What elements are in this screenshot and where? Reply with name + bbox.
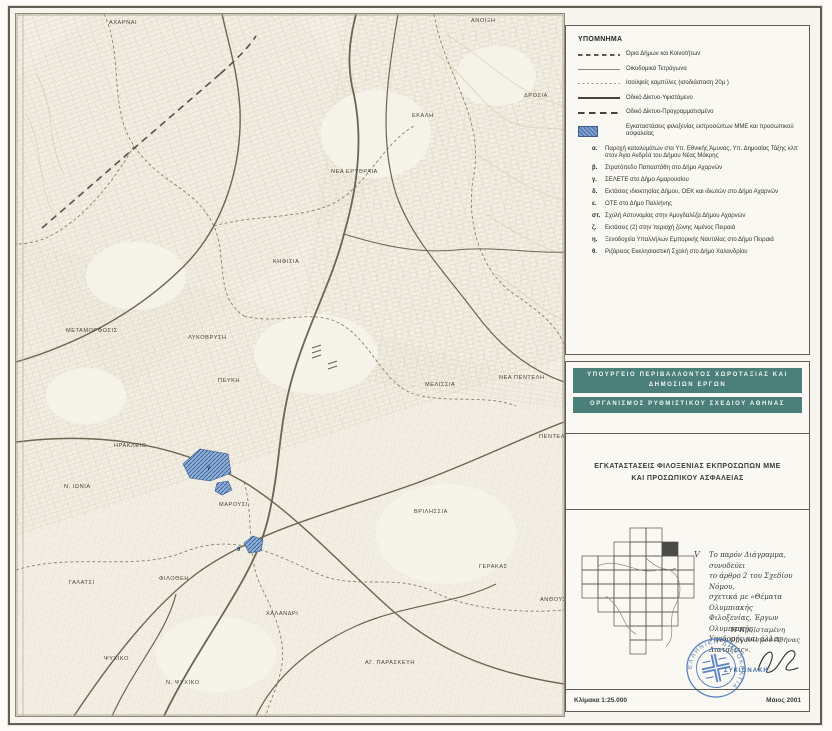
legend-item-label: Ισοϋψείς καμπύλες (ισοδιάσταση 20μ )	[626, 80, 729, 88]
legend-symbol-road-existing	[578, 97, 626, 99]
place-label: ΝΕΑ ΕΡΥΘΡΑΙΑ	[331, 169, 378, 175]
legend-symbol-road-planned	[578, 112, 626, 114]
facility-item-index: α.	[592, 146, 605, 161]
scanned-map-sheet: { "legend": { "heading": "ΥΠΟΜΝΗΜΑ", "li…	[0, 0, 832, 731]
ministry-banner: ΥΠΟΥΡΓΕΙΟ ΠΕΡΙΒΑΛΛΟΝΤΟΣ ΧΩΡΟΤΑΞΙΑΣ ΚΑΙ Δ…	[573, 368, 802, 393]
facility-list-item: ζ.Εκτάσεις (2) στην περιοχή ζώνης λιμένο…	[592, 225, 801, 233]
contour-symbol	[578, 83, 620, 84]
index-grid	[582, 528, 694, 654]
legend-item: Όρια Δήμων και Κοινοτήτων	[578, 51, 801, 59]
note-line: το άρθρο 2 του Σχεδίου Νόμου,	[709, 571, 806, 592]
legend-box: ΥΠΟΜΝΗΜΑ Όρια Δήμων και ΚοινοτήτωνΟικοδο…	[565, 25, 810, 355]
place-label: Ν. ΨΥΧΙΚΟ	[166, 680, 200, 686]
facility-marker-letter: θ	[237, 547, 240, 553]
place-label: ΑΧΑΡΝΑΙ	[109, 20, 137, 26]
place-label: ΠΕΝΤΕΛΗ	[539, 434, 564, 440]
stamp-cross-emblem	[699, 651, 732, 684]
place-label: ΑΓ. ΠΑΡΑΣΚΕΥΗ	[365, 660, 415, 666]
map-title-line2: ΚΑΙ ΠΡΟΣΩΠΙΚΟΥ ΑΣΦΑΛΕΙΑΣ	[631, 473, 743, 484]
facility-list-item: β.Στρατόπεδο Παπαστάθη στο Δήμο Αχαρνών	[592, 165, 801, 173]
legend-item-label: Όρια Δήμων και Κοινοτήτων	[626, 51, 700, 59]
place-label: ΛΥΚΟΒΡΥΣΗ	[188, 335, 227, 341]
map-area: γθ ΑΧΑΡΝΑΙΑΝΟΙΞΗΔΡΟΣΙΑΕΚΑΛΗΝΕΑ ΕΡΥΘΡΑΙΑΚ…	[15, 13, 565, 717]
place-label: ΠΕΥΚΗ	[218, 378, 240, 384]
place-label: ΗΡΑΚΛΕΙΟ	[114, 443, 147, 449]
facility-list-item: η.Ξενοδοχεία Υπαλλήλων Εμπορικής Ναυτιλί…	[592, 237, 801, 245]
legend-symbol-block	[578, 69, 626, 70]
agency-banner: ΟΡΓΑΝΙΣΜΟΣ ΡΥΘΜΙΣΤΙΚΟΥ ΣΧΕΔΙΟΥ ΑΘΗΝΑΣ	[573, 397, 802, 413]
organization-box: ΥΠΟΥΡΓΕΙΟ ΠΕΡΙΒΑΛΛΟΝΤΟΣ ΧΩΡΟΤΑΞΙΑΣ ΚΑΙ Δ…	[565, 361, 810, 435]
legend-symbol-boundary	[578, 54, 626, 56]
facility-item-label: Εκτάσεις ιδιοκτησίας Δήμου, ΟΕΚ και ιδιω…	[605, 189, 778, 197]
note-line: Το παρόν Διάγραμμα, συνοδεύει	[709, 550, 806, 571]
legend-item-label: Εγκαταστάσεις φιλοξενίας εκπροσώπων ΜΜΕ …	[626, 124, 801, 139]
facility-item-label: ΟΤΕ στο Δήμο Παλλήνης	[605, 201, 672, 209]
legend-item: Εγκαταστάσεις φιλοξενίας εκπροσώπων ΜΜΕ …	[578, 124, 801, 139]
legend-facility-list: α.Παροχή καταλυμάτων στα Υπ. Εθνικής Άμυ…	[592, 146, 801, 257]
facility-item-index: δ.	[592, 189, 605, 197]
place-label: ΕΚΑΛΗ	[412, 113, 434, 119]
place-label: ΑΝΘΟΥΣΑ	[540, 597, 564, 603]
scale-date-row: Κλίμακα 1:25.000 Μάιος 2001	[566, 689, 809, 711]
legend-symbol-contour	[578, 83, 626, 84]
facility-item-label: Σχολή Αστυνομίας στην Αμυγδαλέζα Δήμου Α…	[605, 213, 745, 221]
attica-outline	[598, 558, 680, 646]
place-label: Ν. ΙΩΝΙΑ	[64, 484, 91, 490]
facility-item-label: Παροχή καταλυμάτων στα Υπ. Εθνικής Άμυνα…	[605, 146, 801, 161]
legend-heading: ΥΠΟΜΝΗΜΑ	[578, 36, 809, 43]
place-label: ΒΡΙΛΗΣΣΙΑ	[414, 509, 448, 515]
facility-list-item: δ.Εκτάσεις ιδιοκτησίας Δήμου, ΟΕΚ και ιδ…	[592, 189, 801, 197]
note-line: σχετικά με «Θέματα Ολυμπιακής	[709, 592, 806, 613]
legend-item: Οικοδομικά Τετράγωνα	[578, 66, 801, 74]
approval-box: V Το παρόν Διάγραμμα, συνοδεύειτο άρθρο …	[565, 509, 810, 712]
legend-item: Οδικό Δίκτυο-Υφιστάμενο	[578, 95, 801, 103]
place-label: ΓΕΡΑΚΑΣ	[479, 564, 508, 570]
place-label: ΨΥΧΙΚΟ	[104, 656, 129, 662]
legend-item: Ισοϋψείς καμπύλες (ισοδιάσταση 20μ )	[578, 80, 801, 88]
place-label: ΚΗΦΙΣΙΑ	[273, 259, 299, 265]
place-label: ΜΕΛΙΣΣΙΑ	[425, 382, 455, 388]
facility-item-index: ζ.	[592, 225, 605, 233]
legend-item: Οδικό Δίκτυο-Προγραμματισμένο	[578, 109, 801, 117]
map-title-box: ΕΓΚΑΤΑΣΤΑΣΕΙΣ ΦΙΛΟΞΕΝΙΑΣ ΕΚΠΡΟΣΩΠΩΝ ΜΜΕ …	[565, 433, 810, 512]
place-label: ΜΑΡΟΥΣΙ	[219, 502, 248, 508]
facility-item-index: β.	[592, 165, 605, 173]
facility-list-item: γ.ΣΕΛΕΤΕ στο Δήμο Αμαρουσίου	[592, 177, 801, 185]
date-label: Μάιος 2001	[766, 697, 801, 704]
scale-label: Κλίμακα 1:25.000	[574, 697, 627, 704]
facility-item-index: θ.	[592, 249, 605, 257]
place-label: ΓΑΛΑΤΣΙ	[69, 580, 95, 586]
place-label: ΦΙΛΟΘΕΗ	[159, 576, 189, 582]
facility-item-label: Ριζάρειος Εκκλησιαστική Σχολή στο Δήμο Χ…	[605, 249, 748, 257]
facility-item-index: στ.	[592, 213, 605, 221]
facility-list-item: α.Παροχή καταλυμάτων στα Υπ. Εθνικής Άμυ…	[592, 146, 801, 161]
facility-list-item: θ.Ριζάρειος Εκκλησιαστική Σχολή στο Δήμο…	[592, 249, 801, 257]
facility-item-label: ΣΕΛΕΤΕ στο Δήμο Αμαρουσίου	[605, 177, 689, 185]
place-label: ΧΑΛΑΝΔΡΙ	[266, 611, 298, 617]
boundary-symbol	[578, 54, 620, 56]
facility-item-label: Ξενοδοχεία Υπαλλήλων Εμπορικής Ναυτιλίας…	[605, 237, 774, 245]
map-title-line1: ΕΓΚΑΤΑΣΤΑΣΕΙΣ ΦΙΛΟΞΕΝΙΑΣ ΕΚΠΡΟΣΩΠΩΝ ΜΜΕ	[594, 461, 781, 472]
legend-line-items: Όρια Δήμων και ΚοινοτήτωνΟικοδομικά Τετρ…	[566, 51, 809, 139]
facility-item-index: ε.	[592, 201, 605, 209]
facility-swatch-symbol	[578, 126, 598, 137]
facility-item-label: Εκτάσεις (2) στην περιοχή ζώνης λιμένος …	[605, 225, 735, 233]
place-label: ΔΡΟΣΙΑ	[524, 93, 548, 99]
topographic-map-canvas: γθ ΑΧΑΡΝΑΙΑΝΟΙΞΗΔΡΟΣΙΑΕΚΑΛΗΝΕΑ ΕΡΥΘΡΑΙΑΚ…	[16, 14, 564, 716]
sheet-mark: V	[694, 550, 700, 559]
facility-item-index: γ.	[592, 177, 605, 185]
place-label: ΝΕΑ ΠΕΝΤΕΛΗ	[499, 375, 545, 381]
road-planned-symbol	[578, 112, 620, 114]
legend-item-label: Οικοδομικά Τετράγωνα	[626, 66, 687, 74]
place-label: ΜΕΤΑΜΟΡΦΩΣΙΣ	[66, 328, 118, 334]
legend-symbol-facility-swatch	[578, 126, 626, 137]
legend-item-label: Οδικό Δίκτυο-Υφιστάμενο	[626, 95, 693, 103]
facility-list-item: στ.Σχολή Αστυνομίας στην Αμυγδαλέζα Δήμο…	[592, 213, 801, 221]
map-sheet: γθ ΑΧΑΡΝΑΙΑΝΟΙΞΗΔΡΟΣΙΑΕΚΑΛΗΝΕΑ ΕΡΥΘΡΑΙΑΚ…	[8, 6, 822, 725]
block-symbol	[578, 69, 620, 70]
facility-item-label: Στρατόπεδο Παπαστάθη στο Δήμο Αχαρνών	[605, 165, 722, 173]
facility-list-item: ε.ΟΤΕ στο Δήμο Παλλήνης	[592, 201, 801, 209]
place-label: ΑΝΟΙΞΗ	[471, 18, 496, 24]
legend-item-label: Οδικό Δίκτυο-Προγραμματισμένο	[626, 109, 714, 117]
road-existing-symbol	[578, 97, 620, 99]
facility-item-index: η.	[592, 237, 605, 245]
